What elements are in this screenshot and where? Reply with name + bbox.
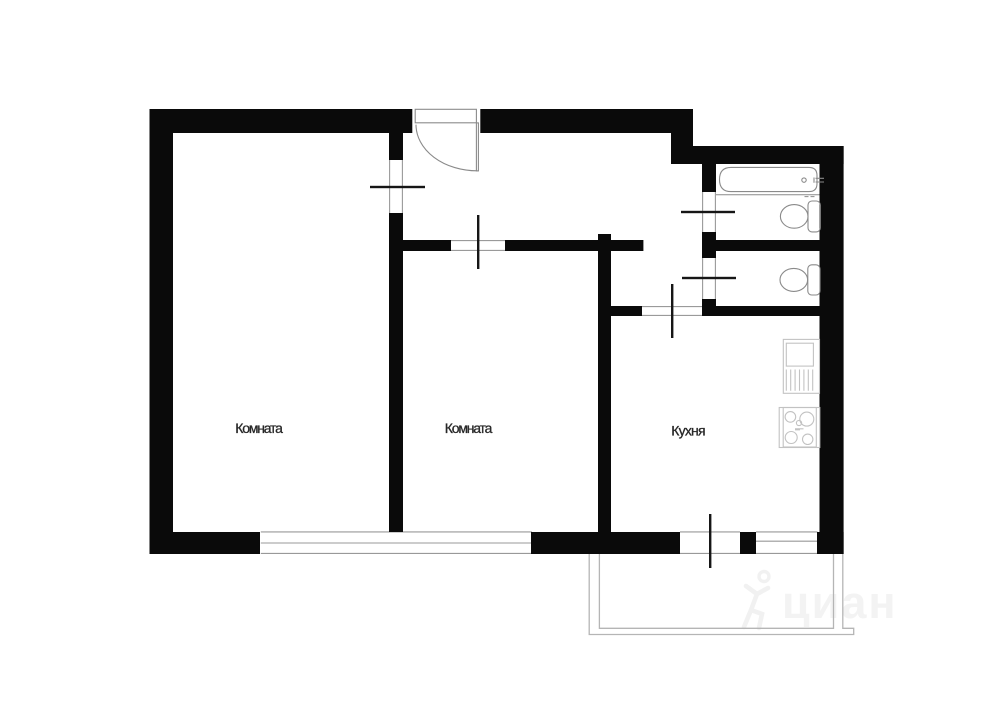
svg-text:Кухня: Кухня (671, 423, 705, 439)
svg-text:Комната: Комната (445, 420, 493, 436)
svg-text:Комната: Комната (235, 420, 283, 436)
svg-text:циан: циан (782, 577, 898, 628)
